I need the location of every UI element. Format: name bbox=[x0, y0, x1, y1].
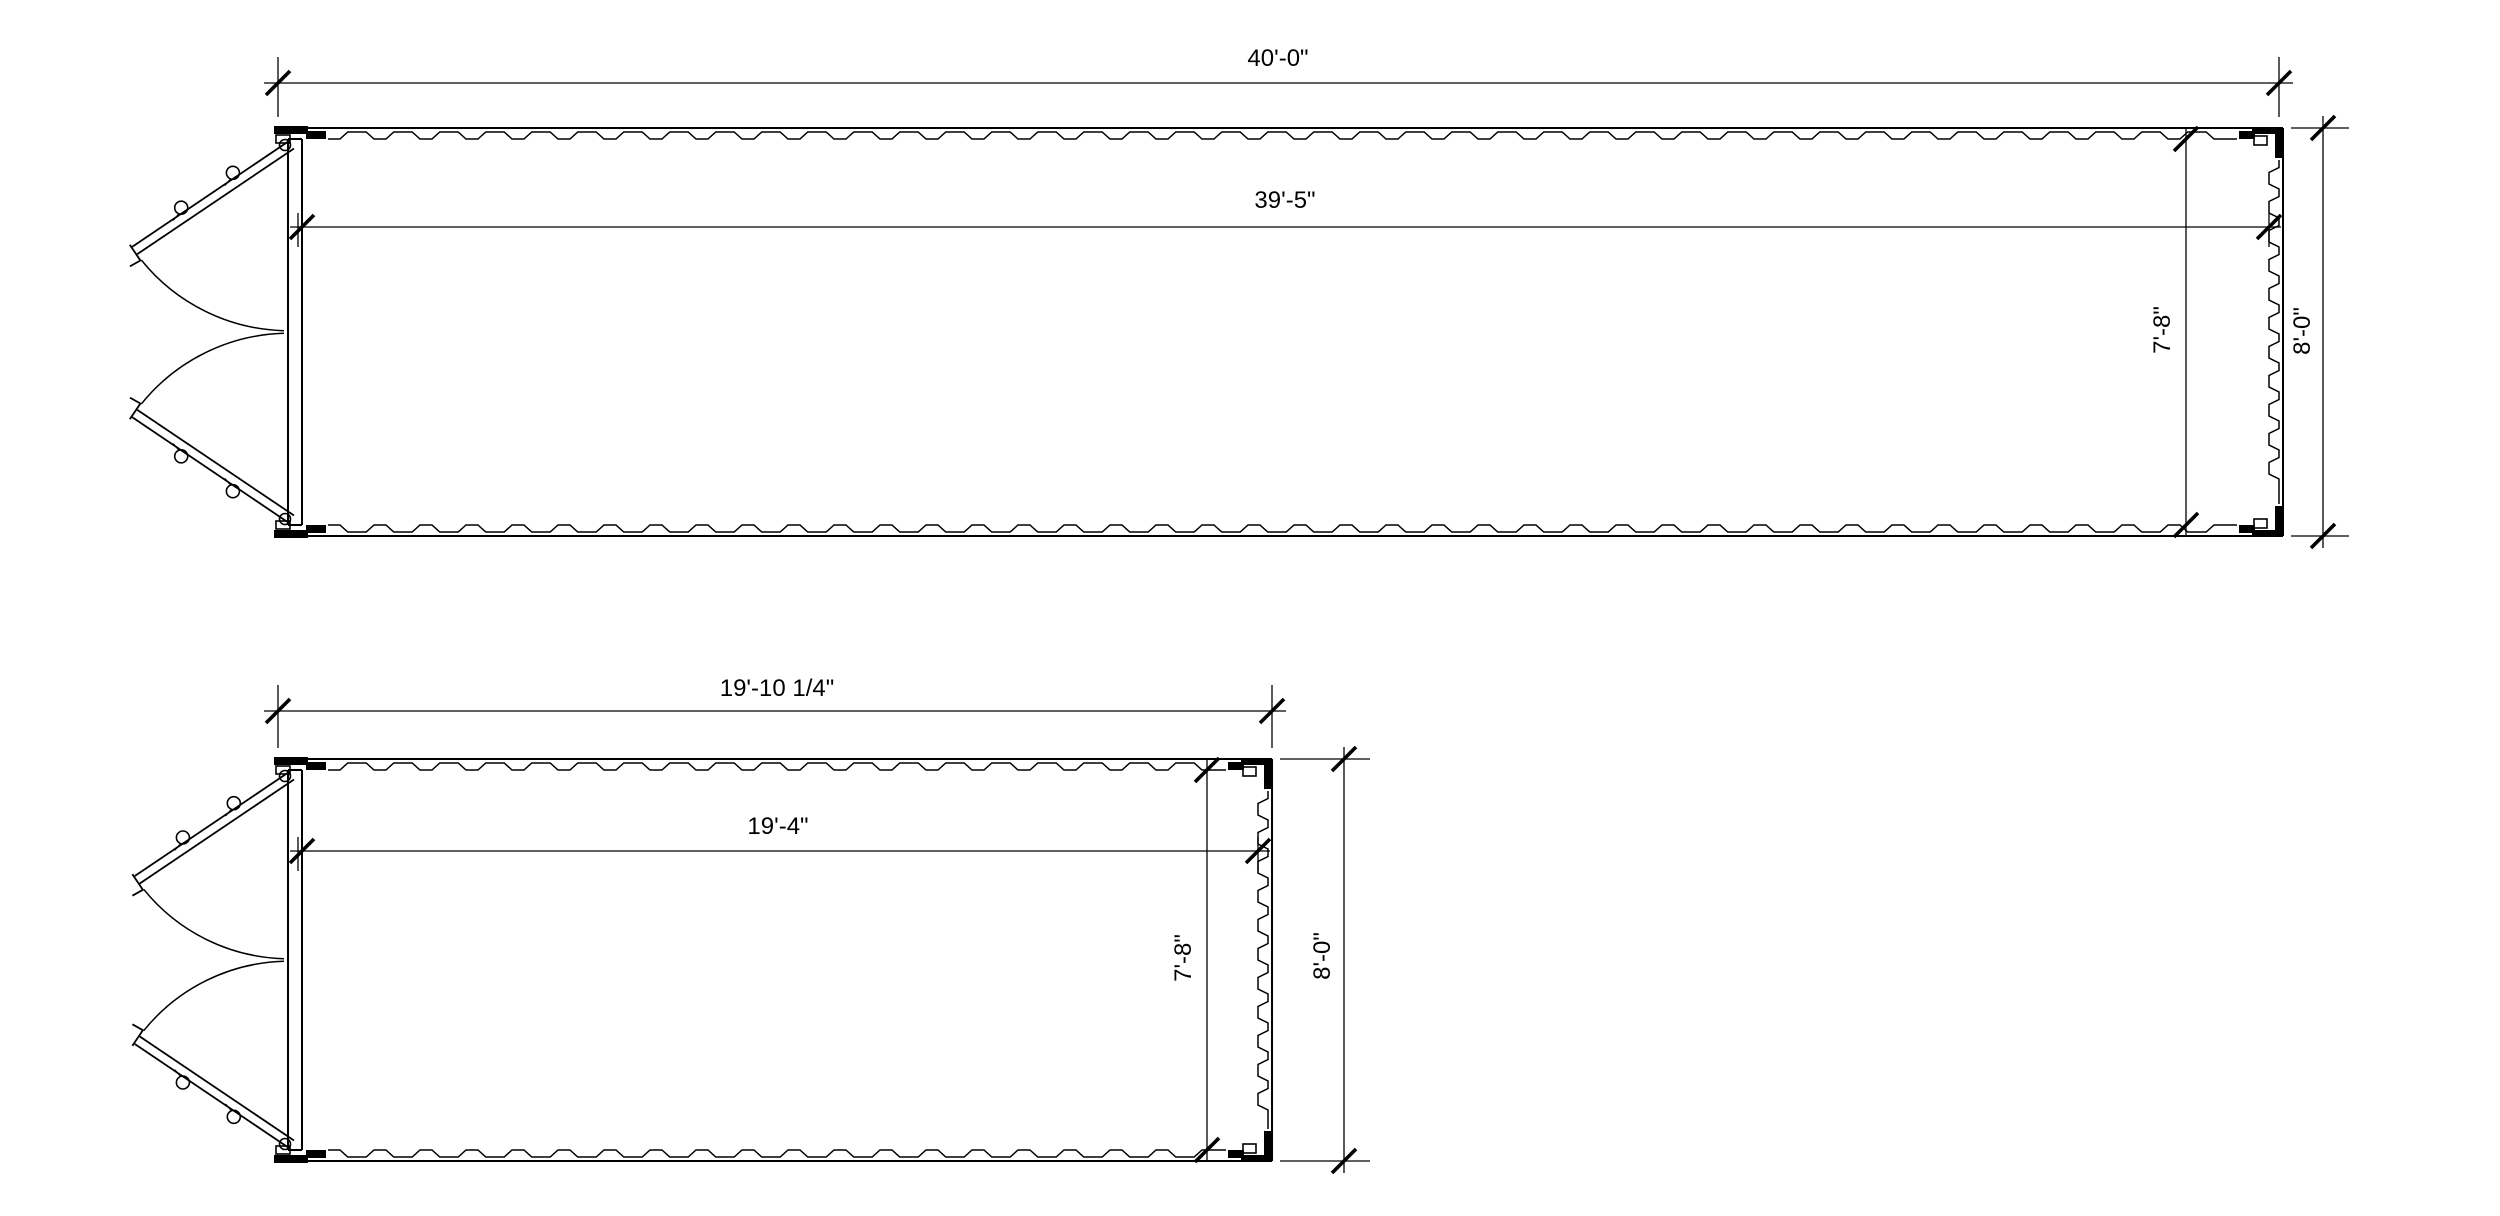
corner-casting-bottom-left bbox=[274, 1155, 308, 1163]
top-wall-panel-end bbox=[306, 131, 326, 139]
dim-label-overall-width-40ft: 8'-0" bbox=[2289, 307, 2316, 355]
dim-label-interior-length-20ft: 19'-4" bbox=[747, 813, 808, 840]
dim-label-interior-length-40ft: 39'-5" bbox=[1254, 187, 1315, 214]
sheet-background bbox=[0, 0, 2500, 1216]
dim-label-overall-width-20ft: 8'-0" bbox=[1309, 932, 1336, 980]
bottom-wall-panel-end bbox=[306, 1150, 326, 1158]
corner-casting-bottom-right bbox=[1264, 1131, 1272, 1162]
container-floor-plans-canvas: 40'-0" 39'-5" 7'-8" 8'-0" 19'-10 1/4" 19… bbox=[0, 0, 2500, 1216]
corner-casting-bottom-right bbox=[2275, 506, 2283, 537]
dim-label-interior-width-40ft: 7'-8" bbox=[2149, 306, 2176, 354]
dim-label-interior-width-20ft: 7'-8" bbox=[1170, 934, 1197, 982]
corner-casting-bottom-left bbox=[274, 530, 308, 538]
corner-casting-top-right bbox=[2275, 127, 2283, 158]
corner-casting-top-left bbox=[274, 757, 308, 765]
corner-casting-bottom-right bbox=[2252, 530, 2275, 537]
corner-casting-top-right bbox=[1264, 758, 1272, 789]
corner-casting-bottom-right bbox=[1241, 1155, 1264, 1162]
dim-label-overall-length-40ft: 40'-0" bbox=[1247, 45, 1308, 72]
corner-casting-top-right bbox=[2252, 127, 2275, 134]
bottom-wall-panel-end bbox=[306, 525, 326, 533]
dim-label-overall-length-20ft: 19'-10 1/4" bbox=[720, 675, 835, 702]
top-wall-panel-end bbox=[306, 762, 326, 770]
corner-casting-top-right bbox=[1241, 758, 1264, 765]
drawing-sheet: 40'-0" 39'-5" 7'-8" 8'-0" 19'-10 1/4" 19… bbox=[0, 0, 2500, 1216]
corner-casting-top-left bbox=[274, 126, 308, 134]
